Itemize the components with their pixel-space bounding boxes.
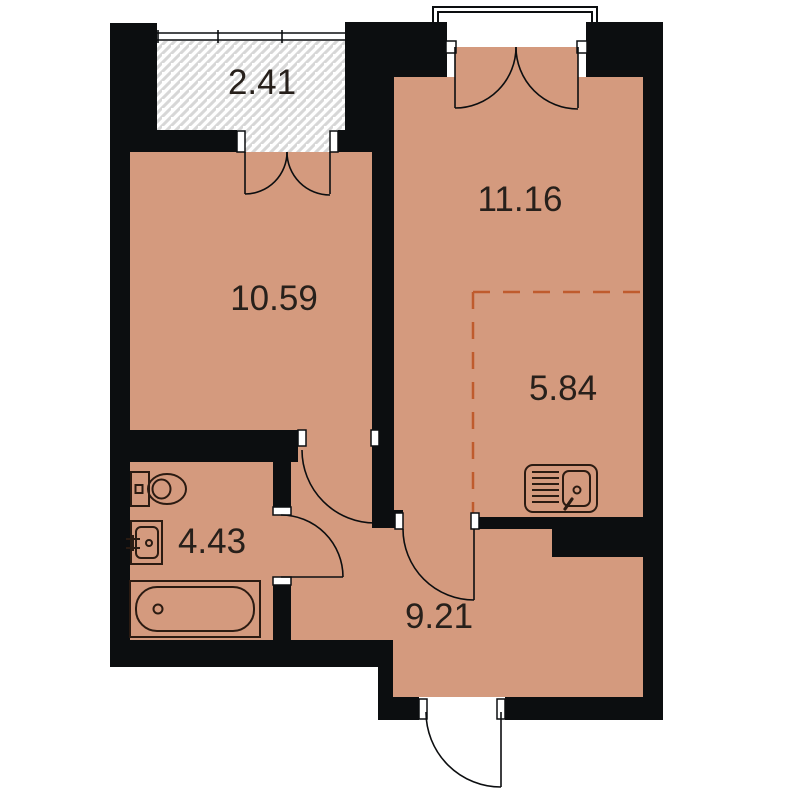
room-label-hallway: 9.21	[405, 597, 473, 636]
wall-between-rooms	[372, 130, 394, 528]
wall-bottom-entry-right	[505, 697, 663, 720]
wall-bedroom-bottom	[110, 430, 298, 462]
room-label-kitchen-zone: 5.84	[529, 369, 597, 408]
wall-kitchen-step	[552, 529, 643, 557]
floor-plan: 2.41 11.16 10.59 5.84 4.43 9.21	[0, 0, 800, 800]
door-frame	[273, 507, 291, 515]
door-frame	[471, 513, 479, 529]
door-frame	[330, 131, 338, 152]
door-frame	[371, 430, 379, 446]
room-label-bedroom: 10.59	[230, 279, 318, 318]
wall-right	[643, 22, 663, 720]
door-frame	[395, 513, 403, 529]
upper-balcony-outline	[433, 7, 597, 32]
room-label-balcony: 2.41	[228, 63, 296, 102]
wall-bottom-left	[110, 640, 393, 667]
door-frame	[237, 131, 245, 152]
balcony-door-recess-hatch	[245, 130, 330, 152]
room-label-living-room: 11.16	[478, 180, 563, 219]
wall-top-livingroom-left	[394, 22, 447, 77]
wall-under-balcony-left	[110, 130, 237, 152]
entrance-door	[426, 712, 501, 787]
door-frame	[273, 577, 291, 585]
wall-bathroom-right-top	[273, 430, 291, 515]
wall-bottom-entry-left	[378, 697, 419, 720]
room-label-bathroom: 4.43	[178, 522, 246, 561]
floor-plan-page: 2.41 11.16 10.59 5.84 4.43 9.21	[0, 0, 800, 800]
wall-kitchen	[471, 517, 643, 529]
door-frame	[298, 430, 306, 446]
wall-top-left-corner	[110, 23, 157, 130]
